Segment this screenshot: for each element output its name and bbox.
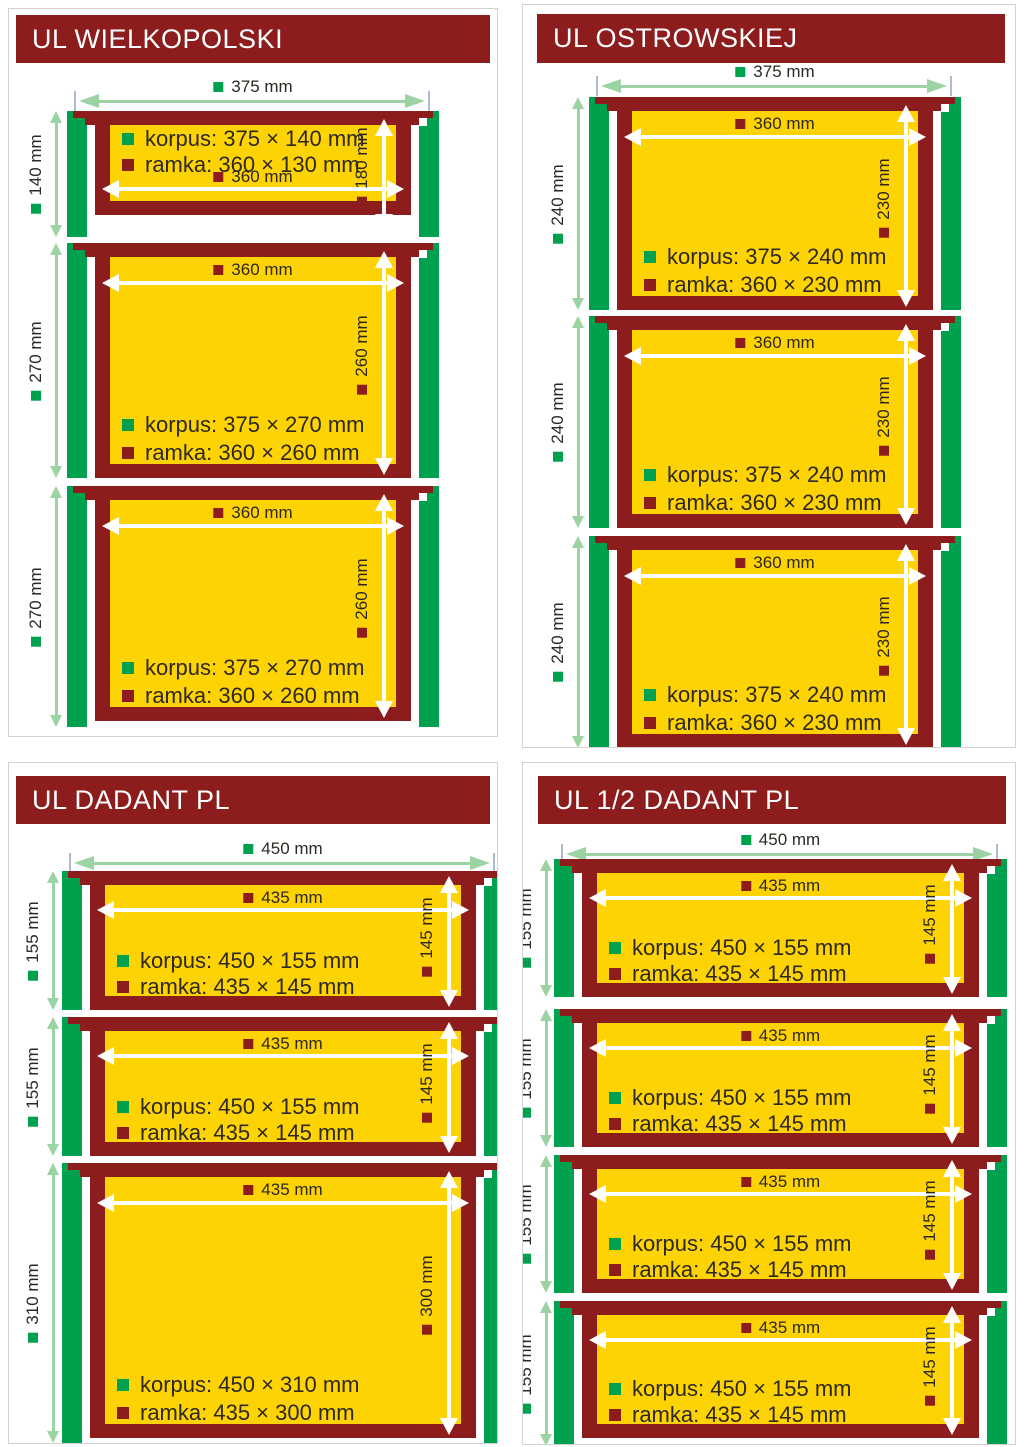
hive-box: 155 mm435 mm145 mmkorpus: 450 × 155 mmra… [523,1155,1015,1293]
green-square-bullet [522,1254,531,1264]
panel-title: UL 1/2 DADANT PL [554,785,799,816]
total-width-arrow-shaft [583,853,976,856]
frame-ear-left [595,316,615,323]
maroon-square-bullet [741,1031,751,1041]
ramka-width-arrow-head-left [589,1039,606,1057]
korpus-height-arrow-head-down [47,1144,59,1156]
frame-ear-right [935,536,955,543]
frame-ear-right [981,1301,1001,1308]
maroon-square-bullet [243,1185,253,1195]
frame-top-bar [572,859,989,873]
frame-ear-left [68,1017,88,1024]
green-side-bar-right [987,1155,1007,1293]
korpus-height-arrow-head-down [47,1431,59,1443]
green-square-bullet [31,636,41,646]
rabbet-notch [987,866,995,874]
korpus-height-arrow-head-down [572,736,584,748]
ramka-width-label: 435 mm [243,1180,322,1200]
panel-title-bar: UL DADANT PL [16,776,490,824]
maroon-square-bullet [422,1112,432,1122]
frame-side-bar-right [461,1176,476,1425]
ramka-height-label-text: 145 mm [417,1043,437,1104]
ramka-width-arrow-head-left [589,1331,606,1349]
maroon-square-bullet [644,279,656,291]
ramka-height-arrow-shaft [382,133,386,217]
korpus-height-label: 270 mm [26,567,46,646]
ramka-spec-line-text: ramka: 435 × 145 mm [140,974,355,1000]
hive-box: 155 mm435 mm145 mmkorpus: 450 × 155 mmra… [523,1301,1015,1445]
ramka-width-label: 360 mm [735,114,814,134]
ramka-height-arrow-shaft [382,508,386,704]
ramka-height-label: 145 mm [920,1326,940,1405]
korpus-height-arrow-shaft [545,1164,548,1284]
green-square-bullet [122,662,134,674]
maroon-square-bullet [357,197,367,207]
frame-ear-right [413,243,433,250]
ramka-height-arrow-head-down [897,508,915,525]
ramka-spec-line: ramka: 360 × 260 mm [122,440,360,466]
green-square-bullet [741,835,751,845]
hive-box: 155 mm435 mm145 mmkorpus: 450 × 155 mmra… [523,1009,1015,1147]
ramka-spec-line-text: ramka: 360 × 230 mm [667,490,882,516]
green-side-bar-left [554,1009,574,1147]
green-side-bar-left [67,486,87,727]
maroon-square-bullet [879,446,889,456]
ramka-height-label-text: 300 mm [417,1255,437,1316]
ramka-height-arrow-head-up [943,1160,961,1177]
ramka-height-arrow-head-down [440,1136,458,1153]
green-side-bar-right [484,871,498,1010]
frame-ear-right [478,1017,498,1024]
green-side-bar-right [941,316,961,528]
green-side-bar-left [589,316,609,528]
ramka-height-label-text: 145 mm [920,884,940,945]
ramka-height-arrow-head-down [440,1418,458,1435]
ramka-height-arrow-head-up [943,1306,961,1323]
ramka-width-label-text: 435 mm [759,1318,820,1338]
ramka-width-arrow-head-right [955,1185,972,1203]
rabbet-notch [484,1024,492,1032]
ramka-spec-line: ramka: 435 × 145 mm [117,1120,355,1146]
hive-box: 270 mm360 mm260 mmkorpus: 375 × 270 mmra… [9,243,497,478]
frame-top-bar [572,1301,989,1315]
korpus-spec-line-text: korpus: 450 × 155 mm [140,1094,360,1120]
frame-ear-right [935,316,955,323]
korpus-spec-line-text: korpus: 450 × 155 mm [632,1085,852,1111]
ramka-height-label: 145 mm [920,884,940,963]
green-side-bar-left [62,1163,82,1443]
hive-box: 240 mm360 mm230 mmkorpus: 375 × 240 mmra… [523,536,1015,748]
green-square-bullet [122,133,134,145]
korpus-spec-line-text: korpus: 375 × 240 mm [667,462,887,488]
ramka-width-arrow-head-left [589,1185,606,1203]
green-square-bullet [644,251,656,263]
ramka-height-arrow-shaft [904,338,908,511]
green-side-bar-right [987,859,1007,997]
korpus-spec-line: korpus: 375 × 240 mm [644,244,887,270]
ramka-spec-line: ramka: 360 × 230 mm [644,272,882,298]
green-square-bullet [117,955,129,967]
ramka-width-arrow-head-left [102,180,119,198]
maroon-square-bullet [644,497,656,509]
maroon-square-bullet [644,717,656,729]
extension-tick-left [74,91,76,111]
korpus-height-arrow-head-down [50,225,62,237]
frame-ear-left [595,97,615,104]
ramka-height-label-text: 145 mm [417,897,437,958]
korpus-spec-line: korpus: 375 × 240 mm [644,462,887,488]
frame-side-bar-left [90,1176,105,1425]
ramka-width-label-text: 435 mm [759,1172,820,1192]
green-square-bullet [609,1092,621,1104]
panel-ul-dadant-pl: UL DADANT PL 450 mm155 mm435 mm145 mmkor… [8,762,498,1444]
ramka-width-arrow-head-left [97,1194,114,1212]
panel-ul-wielkopolski: UL WIELKOPOLSKI 375 mm140 mm360 mm180 mm… [8,8,498,737]
frame-ear-left [560,1155,580,1162]
korpus-height-arrow-head-up [540,1009,552,1021]
ramka-spec-line-text: ramka: 360 × 260 mm [145,440,360,466]
ramka-width-arrow-head-right [452,901,469,919]
rabbet-notch [484,878,492,886]
hive-box: 270 mm360 mm260 mmkorpus: 375 × 270 mmra… [9,486,497,727]
frame-ear-right [478,1163,498,1170]
korpus-height-arrow-head-up [572,97,584,109]
korpus-height-label: 155 mm [23,1047,43,1126]
korpus-height-arrow-head-down [540,1135,552,1147]
ramka-height-arrow-head-up [943,1014,961,1031]
korpus-height-arrow-head-down [47,998,59,1010]
ramka-height-arrow-shaft [950,1028,954,1130]
korpus-height-label: 140 mm [26,134,46,213]
frame-top-bar [80,871,486,885]
rabbet-notch [419,118,427,126]
ramka-spec-line-text: ramka: 435 × 145 mm [632,1111,847,1137]
extension-tick-left [69,853,71,873]
ramka-height-label-text: 145 mm [920,1180,940,1241]
korpus-height-arrow-shaft [545,868,548,988]
korpus-height-arrow-head-down [540,1434,552,1445]
hive-box: 155 mm435 mm145 mmkorpus: 450 × 155 mmra… [9,1017,497,1156]
frame-top-bar [607,97,943,111]
ramka-height-arrow-head-up [440,1171,458,1188]
total-width-arrow-head-left [601,79,621,93]
korpus-height-arrow-shaft [577,325,580,519]
korpus-height-label: 155 mm [522,1038,536,1117]
ramka-spec-line-text: ramka: 360 × 130 mm [145,152,360,178]
ramka-width-arrow-head-left [102,274,119,292]
ramka-spec-line: ramka: 360 × 130 mm [122,152,360,178]
korpus-height-arrow-head-up [540,1155,552,1167]
green-side-bar-left [554,1155,574,1293]
green-side-bar-left [589,97,609,310]
ramka-width-arrow-shaft [111,1201,455,1205]
ramka-height-label-text: 260 mm [352,558,372,619]
korpus-spec-line: korpus: 450 × 310 mm [117,1372,360,1398]
korpus-spec-line-text: korpus: 375 × 240 mm [667,244,887,270]
frame-ear-left [68,1163,88,1170]
frame-ear-left [560,859,580,866]
maroon-square-bullet [735,338,745,348]
ramka-height-label: 230 mm [874,158,894,237]
green-side-bar-left [62,871,82,1010]
ramka-height-label: 230 mm [874,596,894,675]
ramka-width-label: 360 mm [735,333,814,353]
total-width-label-text: 450 mm [759,830,820,850]
total-width-label-text: 375 mm [231,77,292,97]
korpus-height-label-text: 155 mm [522,888,536,949]
total-width-arrow-shaft [618,85,930,88]
korpus-height-arrow-head-up [50,486,62,498]
korpus-height-arrow-shaft [52,1026,55,1147]
ramka-width-arrow-shaft [111,908,455,912]
frame-ear-left [560,1009,580,1016]
maroon-square-bullet [741,1323,751,1333]
panel-ul-half-dadant-pl: UL 1/2 DADANT PL 450 mm155 mm435 mm145 m… [522,762,1016,1445]
frame-top-bar [607,536,943,550]
korpus-height-arrow-shaft [577,545,580,739]
green-square-bullet [553,452,563,462]
maroon-square-bullet [213,508,223,518]
ramka-width-arrow-head-left [624,347,641,365]
ramka-width-arrow-head-left [97,901,114,919]
frame-ear-left [68,871,88,878]
korpus-height-label: 240 mm [548,382,568,461]
ramka-width-arrow-shaft [638,354,912,358]
korpus-spec-line-text: korpus: 375 × 270 mm [145,655,365,681]
ramka-height-arrow-head-up [375,119,393,136]
ramka-spec-line-text: ramka: 435 × 145 mm [632,1257,847,1283]
hive-box: 310 mm435 mm300 mmkorpus: 450 × 310 mmra… [9,1163,497,1443]
maroon-square-bullet [741,881,751,891]
ramka-height-arrow-shaft [950,878,954,980]
ramka-width-arrow-head-left [102,517,119,535]
ramka-spec-line-text: ramka: 360 × 260 mm [145,683,360,709]
green-side-bar-left [554,859,574,997]
maroon-square-bullet [925,1395,935,1405]
ramka-height-label-text: 230 mm [874,596,894,657]
korpus-height-label-text: 310 mm [23,1263,43,1324]
ramka-width-arrow-head-right [387,180,404,198]
korpus-spec-line-text: korpus: 450 × 155 mm [140,948,360,974]
ramka-spec-line-text: ramka: 360 × 230 mm [667,710,882,736]
rabbet-notch [987,1016,995,1024]
ramka-width-arrow-head-right [452,1047,469,1065]
korpus-height-label-text: 155 mm [522,1038,536,1099]
ramka-height-arrow-shaft [447,1036,451,1139]
korpus-spec-line-text: korpus: 375 × 270 mm [145,412,365,438]
ramka-height-arrow-head-up [897,324,915,341]
maroon-square-bullet [741,1177,751,1187]
rabbet-notch [941,104,949,112]
maroon-square-bullet [609,1409,621,1421]
frame-ear-left [73,243,93,250]
korpus-spec-line: korpus: 375 × 270 mm [122,412,365,438]
ramka-height-label: 300 mm [417,1255,437,1334]
korpus-height-arrow-head-up [572,316,584,328]
panel-title-bar: UL 1/2 DADANT PL [538,776,1006,824]
ramka-width-arrow-head-left [589,889,606,907]
ramka-height-arrow-shaft [382,265,386,461]
green-square-bullet [553,233,563,243]
green-square-bullet [117,1101,129,1113]
ramka-height-label: 145 mm [920,1034,940,1113]
ramka-width-label: 435 mm [741,876,820,896]
maroon-square-bullet [357,384,367,394]
ramka-height-arrow-shaft [447,890,451,993]
green-square-bullet [522,1403,531,1413]
ramka-spec-line: ramka: 360 × 230 mm [644,710,882,736]
maroon-square-bullet [422,1324,432,1334]
green-square-bullet [609,1383,621,1395]
green-side-bar-left [62,1017,82,1156]
frame-ear-left [73,111,93,118]
frame-ear-left [73,486,93,493]
korpus-height-arrow-head-up [540,859,552,871]
ramka-height-label-text: 260 mm [352,315,372,376]
green-side-bar-right [484,1017,498,1156]
korpus-height-label-text: 240 mm [548,602,568,663]
green-side-bar-left [589,536,609,748]
frame-bottom-bar [617,734,933,748]
ramka-width-label-text: 360 mm [753,553,814,573]
korpus-spec-line: korpus: 450 × 155 mm [609,1085,852,1111]
ramka-height-label-text: 145 mm [920,1326,940,1387]
maroon-square-bullet [122,690,134,702]
ramka-height-label-text: 230 mm [874,376,894,437]
korpus-height-label-text: 155 mm [23,1047,43,1108]
maroon-square-bullet [117,1127,129,1139]
frame-top-bar [607,316,943,330]
korpus-height-arrow-shaft [52,1172,55,1434]
ramka-width-label-text: 360 mm [753,333,814,353]
ramka-width-label-text: 435 mm [261,1034,322,1054]
green-square-bullet [735,67,745,77]
korpus-height-arrow-head-down [572,516,584,528]
frame-ear-right [478,871,498,878]
korpus-height-label: 155 mm [522,1184,536,1263]
green-square-bullet [31,390,41,400]
green-side-bar-left [67,111,87,237]
maroon-square-bullet [609,968,621,980]
total-width-arrow-head-right [927,79,947,93]
ramka-height-arrow-head-up [897,544,915,561]
ramka-height-arrow-shaft [950,1174,954,1276]
rabbet-notch [419,493,427,501]
ramka-width-label: 435 mm [741,1318,820,1338]
ramka-width-label-text: 360 mm [231,503,292,523]
korpus-spec-line: korpus: 375 × 140 mm [122,126,365,152]
panel-title: UL OSTROWSKIEJ [553,23,798,54]
rabbet-notch [419,250,427,258]
korpus-height-arrow-head-up [50,243,62,255]
green-side-bar-right [484,1163,498,1443]
ramka-height-label: 260 mm [352,558,372,637]
korpus-spec-line-text: korpus: 375 × 140 mm [145,126,365,152]
ramka-width-arrow-head-right [909,128,926,146]
maroon-square-bullet [609,1264,621,1276]
ramka-height-arrow-head-down [897,290,915,307]
ramka-width-arrow-head-left [624,128,641,146]
total-width-label-text: 450 mm [261,839,322,859]
rabbet-notch [941,543,949,551]
ramka-spec-line: ramka: 435 × 145 mm [117,974,355,1000]
ramka-height-label: 145 mm [417,1043,437,1122]
korpus-spec-line: korpus: 450 × 155 mm [609,1231,852,1257]
korpus-spec-line-text: korpus: 450 × 155 mm [632,935,852,961]
green-square-bullet [28,1116,38,1126]
ramka-width-label: 435 mm [741,1026,820,1046]
ramka-width-arrow-shaft [603,1046,958,1050]
korpus-spec-line: korpus: 375 × 240 mm [644,682,887,708]
ramka-width-arrow-shaft [603,1192,958,1196]
ramka-height-arrow-head-down [375,458,393,475]
green-square-bullet [243,844,253,854]
total-width-label: 450 mm [741,830,820,850]
korpus-height-label: 155 mm [522,888,536,967]
frame-ear-right [981,1009,1001,1016]
frame-top-bar [80,1017,486,1031]
frame-bottom-bar [95,464,411,478]
ramka-width-label: 360 mm [213,503,292,523]
frame-top-bar [85,111,421,125]
korpus-height-arrow-shaft [55,495,58,718]
ramka-spec-line: ramka: 435 × 145 mm [609,1402,847,1428]
green-side-bar-right [419,243,439,478]
frame-bottom-bar [90,1424,476,1438]
ramka-width-label: 435 mm [741,1172,820,1192]
korpus-height-arrow-head-up [47,871,59,883]
maroon-square-bullet [122,159,134,171]
green-square-bullet [644,469,656,481]
maroon-square-bullet [117,1407,129,1419]
frame-bottom-bar [95,707,411,721]
korpus-height-arrow-shaft [577,106,580,301]
ramka-width-label: 360 mm [213,260,292,280]
korpus-height-arrow-head-down [50,715,62,727]
extension-tick-right [428,91,430,111]
korpus-height-label-text: 140 mm [26,134,46,195]
ramka-height-arrow-head-up [375,251,393,268]
korpus-height-label-text: 155 mm [522,1184,536,1245]
panel-title-bar: UL WIELKOPOLSKI [16,15,490,63]
total-width-label: 375 mm [213,77,292,97]
korpus-height-arrow-head-up [572,536,584,548]
hive-box: 240 mm360 mm230 mmkorpus: 375 × 240 mmra… [523,97,1015,310]
frame-ear-right [981,859,1001,866]
total-width-arrow-head-left [74,856,94,870]
korpus-spec-line: korpus: 450 × 155 mm [117,1094,360,1120]
ramka-width-arrow-head-left [97,1047,114,1065]
ramka-width-arrow-shaft [116,524,390,528]
ramka-width-arrow-head-right [909,567,926,585]
maroon-square-bullet [243,1039,253,1049]
frame-bottom-bar [617,514,933,528]
frame-top-bar [85,243,421,257]
korpus-spec-line-text: korpus: 450 × 155 mm [632,1376,852,1402]
ramka-height-label-text: 145 mm [920,1034,940,1095]
korpus-spec-line-text: korpus: 450 × 155 mm [632,1231,852,1257]
ramka-width-arrow-head-right [955,1039,972,1057]
ramka-spec-line: ramka: 435 × 145 mm [609,1257,847,1283]
maroon-square-bullet [925,1104,935,1114]
ramka-height-arrow-head-down [943,1418,961,1435]
hive-box: 155 mm435 mm145 mmkorpus: 450 × 155 mmra… [9,871,497,1010]
rabbet-notch [941,323,949,331]
ramka-spec-line: ramka: 435 × 145 mm [609,1111,847,1137]
ramka-height-label: 145 mm [417,897,437,976]
korpus-height-arrow-shaft [545,1310,548,1437]
total-width-arrow-head-left [79,94,99,108]
